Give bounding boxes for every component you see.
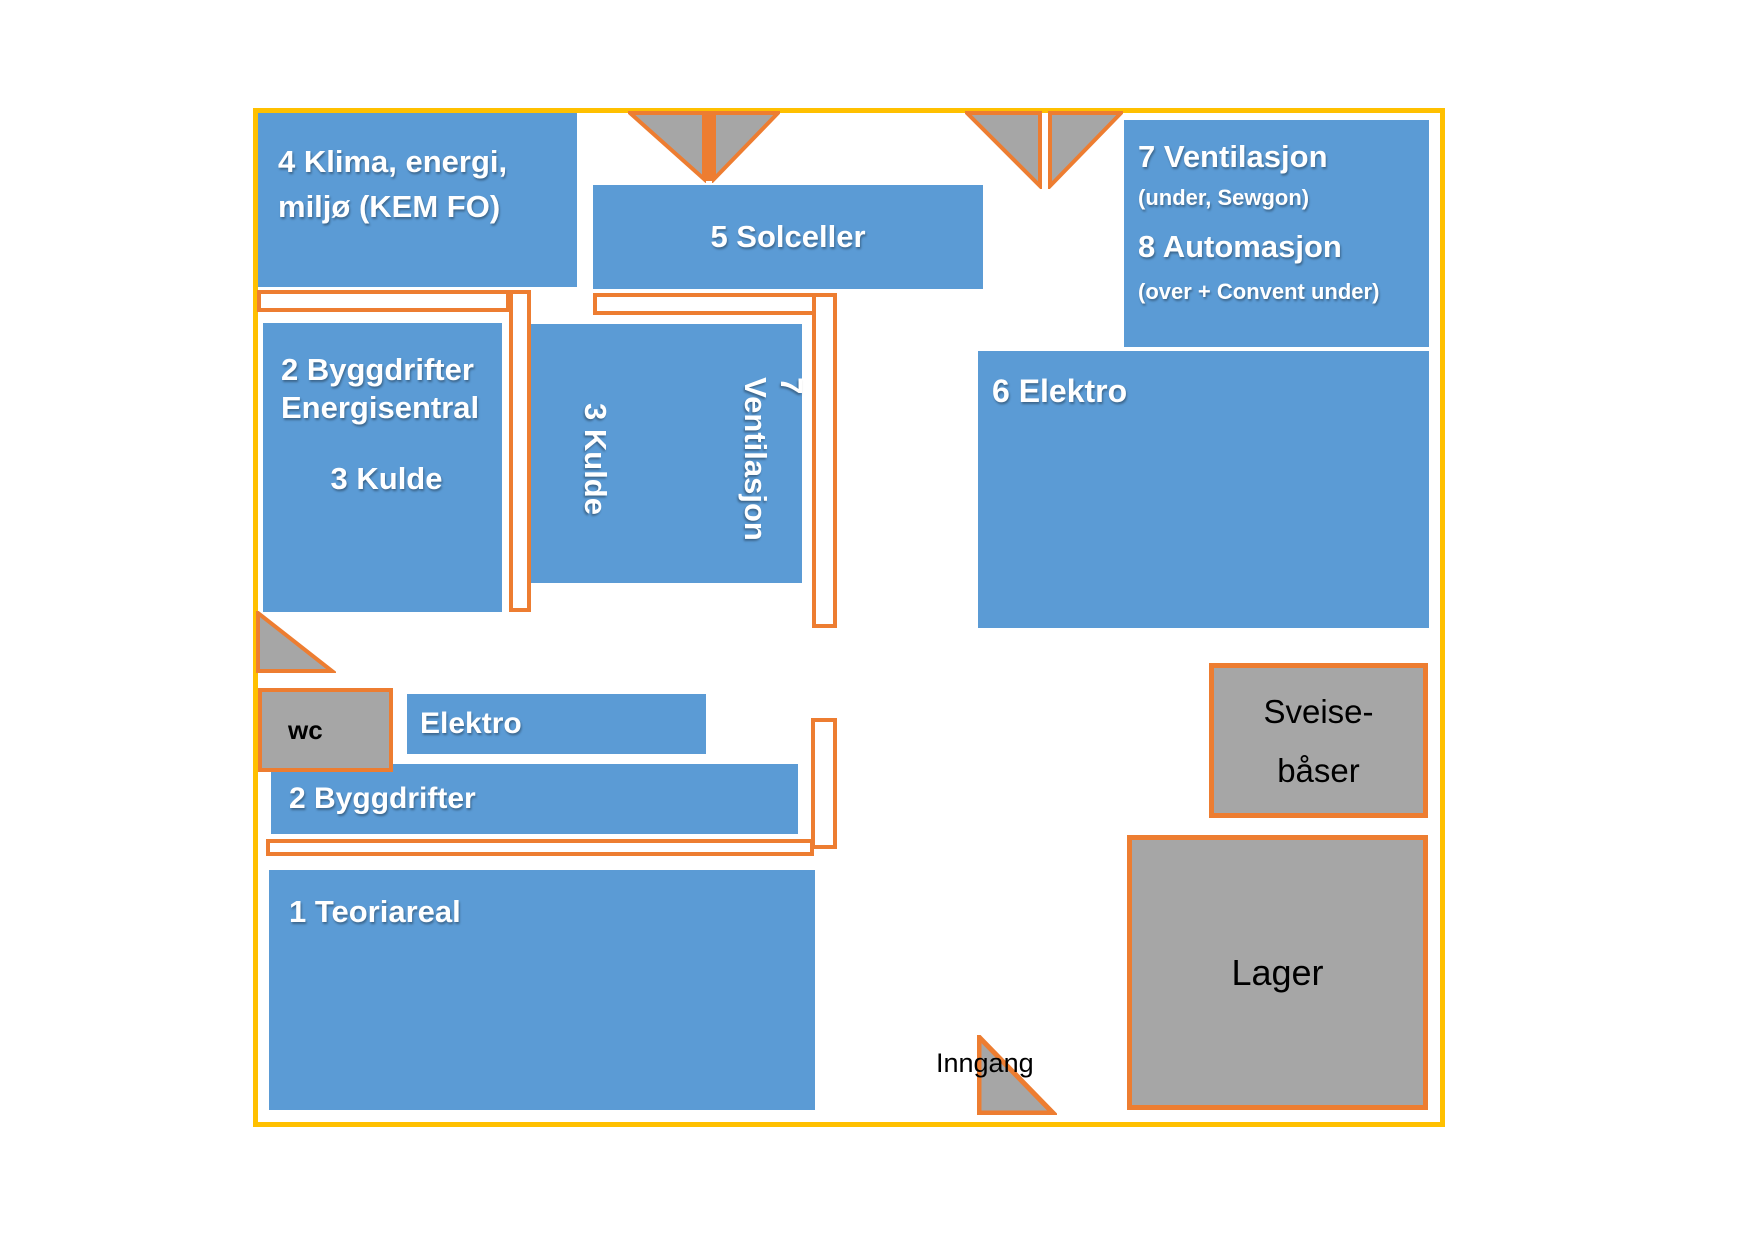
room-label-kulde: 3 Kulde	[577, 403, 613, 515]
room-sublabel: 3 Kulde	[281, 461, 492, 497]
room-elektro-6: 6 Elektro	[978, 351, 1429, 628]
room-solceller: 5 Solceller	[593, 185, 983, 289]
room-lager: Lager	[1127, 835, 1428, 1110]
corridor-left-vertical	[509, 290, 531, 612]
room-label: Elektro	[420, 707, 522, 741]
corridor-lower-horizontal	[266, 839, 814, 856]
floor-plan: 4 Klima, energi, miljø (KEM FO) 5 Solcel…	[0, 0, 1754, 1240]
room-teoriareal: 1 Teoriareal	[269, 870, 815, 1110]
room-label: Lager	[1231, 952, 1323, 994]
room-label-line2: (under, Sewgon)	[1138, 186, 1423, 210]
room-byggdrifter-energisentral: 2 Byggdrifter Energisentral 3 Kulde	[263, 323, 502, 612]
room-label: wc	[288, 715, 323, 746]
corridor-mid-horizontal	[593, 293, 837, 315]
room-label-line3: 8 Automasjon	[1138, 230, 1423, 264]
entrance-label: Inngang	[936, 1048, 1034, 1079]
room-label-ventilasjon: 7 Ventilasjon	[737, 377, 809, 541]
double-door-icon-right	[965, 111, 1123, 189]
room-ventilasjon-automasjon: 7 Ventilasjon (under, Sewgon) 8 Automasj…	[1124, 120, 1429, 347]
room-label-line1: 7 Ventilasjon	[1138, 140, 1423, 174]
corridor-left-horizontal	[257, 290, 510, 312]
room-label: 2 Byggdrifter Energisentral	[281, 351, 492, 427]
room-label: Sveise- båser	[1263, 682, 1373, 800]
room-sveisebaser: Sveise- båser	[1209, 663, 1428, 818]
room-klima-kem: 4 Klima, energi, miljø (KEM FO)	[258, 113, 577, 287]
room-label: 5 Solceller	[710, 219, 865, 255]
room-label: 4 Klima, energi, miljø (KEM FO)	[258, 113, 577, 229]
room-elektro-small: Elektro	[407, 694, 706, 754]
side-door-icon	[256, 611, 336, 675]
double-door-icon-left	[628, 111, 780, 183]
room-wc: wc	[258, 688, 393, 772]
room-kulde-ventilasjon: 3 Kulde 7 Ventilasjon	[530, 324, 802, 583]
room-label-line4: (over + Convent under)	[1138, 280, 1423, 304]
room-label: 2 Byggdrifter	[289, 782, 476, 816]
corridor-lower-vertical	[811, 718, 837, 849]
room-label: 1 Teoriareal	[289, 894, 815, 930]
corridor-mid-vertical	[812, 293, 837, 628]
room-label: 6 Elektro	[992, 373, 1429, 410]
room-byggdrifter-2: 2 Byggdrifter	[271, 764, 798, 834]
